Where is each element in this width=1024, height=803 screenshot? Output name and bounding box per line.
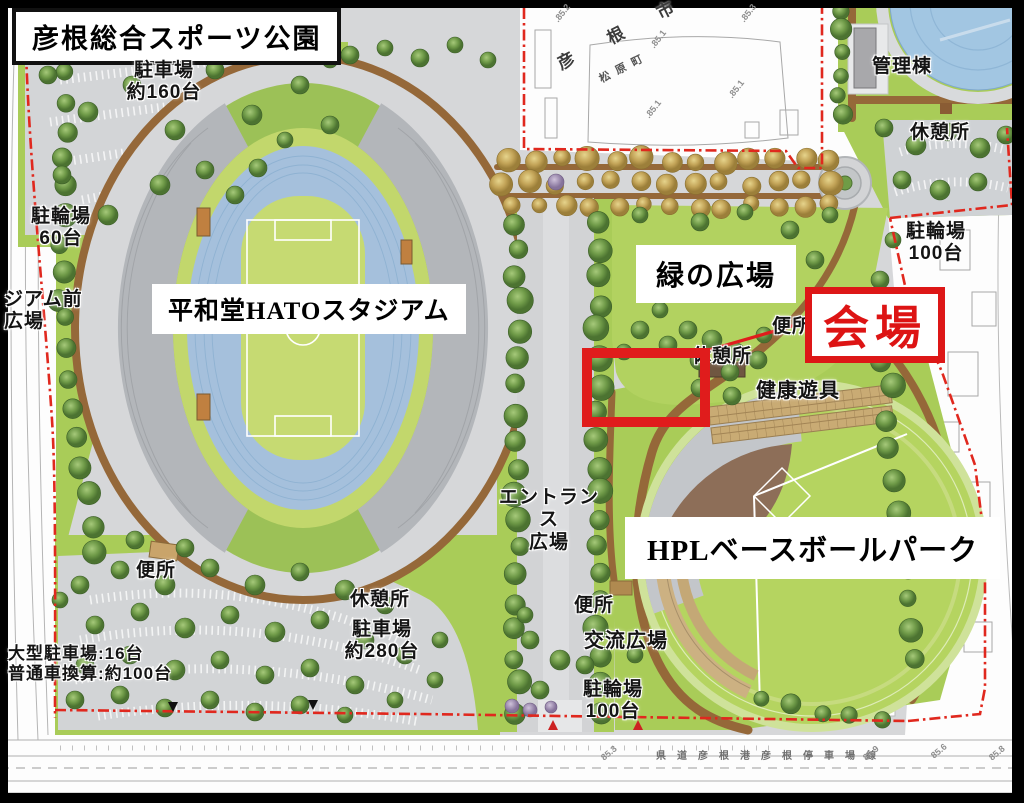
label-toilet-bottom-mid: 便所 <box>574 595 614 617</box>
map-title: 彦根総合スポーツ公園 <box>12 8 341 65</box>
label-road-name: 県道彦根港彦根停車場線 <box>656 747 887 762</box>
park-map: 彦根総合スポーツ公園 駐車場 約160台 駐輪場 60台 ジアム前 広場 平和堂… <box>0 0 1024 803</box>
rest-hut-top <box>940 103 952 114</box>
label-rest-bottom: 休憩所 <box>350 589 410 611</box>
label-bike-parking-100-bottom: 駐輪場 100台 <box>578 679 648 724</box>
label-entrance-plaza: エントランス 広場 <box>494 487 604 554</box>
label-bike-parking-100-right: 駐輪場 100台 <box>901 221 971 266</box>
label-stadium: 平和堂HATOスタジアム <box>152 284 466 334</box>
venue-highlight-rect <box>582 348 710 427</box>
label-admin-building: 管理棟 <box>872 56 932 78</box>
label-large-parking: 大型駐車場:16台 普通車換算:約100台 <box>8 644 188 684</box>
label-exchange-plaza: 交流広場 <box>584 630 668 654</box>
label-venue: 会場 <box>805 287 945 363</box>
label-green-plaza: 緑の広場 <box>636 245 796 303</box>
label-health-equipment: 健康遊具 <box>756 380 840 404</box>
label-stadium-front-plaza: ジアム前 広場 <box>4 289 88 334</box>
label-baseball-park: HPLベースボールパーク <box>625 517 1000 579</box>
label-bike-parking-60: 駐輪場 60台 <box>26 206 96 251</box>
label-toilet-bottom-left: 便所 <box>136 560 176 582</box>
label-parking-160: 駐車場 約160台 <box>118 60 210 105</box>
label-rest-top-right: 休憩所 <box>910 122 970 144</box>
label-parking-280: 駐車場 約280台 <box>336 619 428 664</box>
